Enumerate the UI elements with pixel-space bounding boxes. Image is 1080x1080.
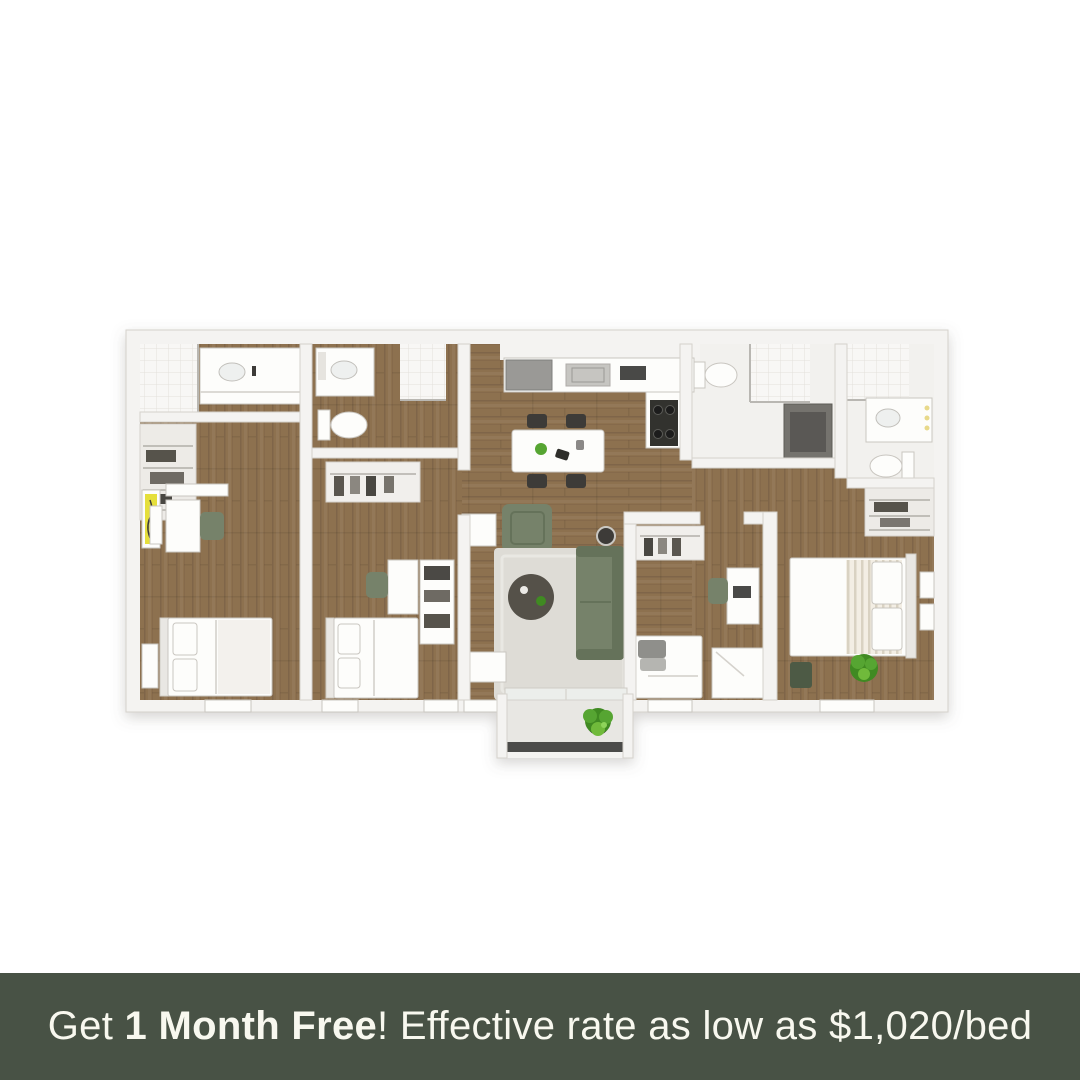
clothes [874, 502, 908, 512]
balcony [497, 688, 633, 758]
toilet [705, 363, 737, 387]
clothes [366, 476, 376, 496]
promo-text-suffix: ! Effective rate as low as $1,020/bed [377, 1004, 1032, 1048]
floor-plan-image [0, 0, 1080, 973]
leaning-frame [142, 644, 158, 688]
sink [876, 409, 900, 427]
sink [219, 363, 245, 381]
mug [520, 586, 528, 594]
desk [166, 500, 200, 552]
fridge [506, 360, 552, 390]
headboard [326, 618, 334, 698]
clothes [150, 472, 184, 484]
shower-tile [847, 344, 909, 400]
clothes [880, 518, 910, 527]
desk-chair [708, 578, 728, 604]
vanity-light [925, 406, 930, 411]
sink [331, 361, 357, 379]
desk [388, 560, 418, 614]
window [820, 700, 874, 712]
dining-chair [566, 414, 586, 428]
window [424, 700, 458, 712]
clothes [384, 476, 394, 493]
dining-chair [566, 474, 586, 488]
clothes [146, 450, 176, 462]
clothes [672, 538, 681, 556]
toilet [870, 455, 902, 477]
floor-plan [126, 330, 948, 758]
shower-tile [140, 344, 198, 412]
pillow [872, 608, 902, 650]
dining-chair [527, 414, 547, 428]
pillow [173, 623, 197, 655]
window [464, 700, 498, 712]
clothes [658, 538, 667, 554]
window [648, 700, 692, 712]
faucet [252, 366, 256, 376]
clothes [350, 476, 360, 494]
coffee-table [508, 574, 554, 620]
toilet-tank [694, 362, 705, 388]
floor-plan-area [0, 0, 1080, 973]
pillow [872, 562, 902, 604]
pillow-gray [638, 640, 666, 658]
blanket [218, 620, 270, 694]
vanity-light [925, 416, 930, 421]
pillow [338, 624, 360, 654]
window [322, 700, 358, 712]
promo-text-prefix: Get [48, 1004, 125, 1048]
pillow-gray [640, 658, 666, 671]
table-plant [535, 443, 547, 455]
sofa-back [612, 548, 624, 658]
dining-chair [527, 474, 547, 488]
promo-text-bold: 1 Month Free [125, 1004, 378, 1048]
wall-art-frame [920, 604, 934, 630]
headboard [906, 554, 916, 658]
table-decor [576, 440, 584, 450]
vanity-light [925, 426, 930, 431]
shower-tile [750, 344, 810, 402]
desk-chair [366, 572, 388, 598]
toilet-tank [902, 452, 914, 480]
bathroom-1 [140, 344, 306, 412]
window [205, 700, 251, 712]
table-sprig [536, 596, 546, 606]
bench [790, 662, 812, 688]
closet-4 [865, 488, 934, 536]
laptop [733, 586, 751, 598]
toilet-tank [318, 410, 330, 440]
pillow [173, 659, 197, 691]
toilet [331, 412, 367, 438]
pillow [338, 658, 360, 688]
shelf [166, 484, 228, 496]
shower-tile [400, 344, 446, 400]
clothes [644, 538, 653, 556]
promo-text: Get 1 Month Free! Effective rate as low … [48, 1004, 1033, 1049]
balcony-rail [503, 742, 627, 752]
stove-hood [620, 366, 646, 380]
clothes [334, 476, 344, 496]
desk-chair [200, 512, 224, 540]
promo-banner: Get 1 Month Free! Effective rate as low … [0, 973, 1080, 1080]
sink [566, 364, 610, 386]
wall-art-frame [920, 572, 934, 598]
plant-stool [597, 527, 615, 545]
